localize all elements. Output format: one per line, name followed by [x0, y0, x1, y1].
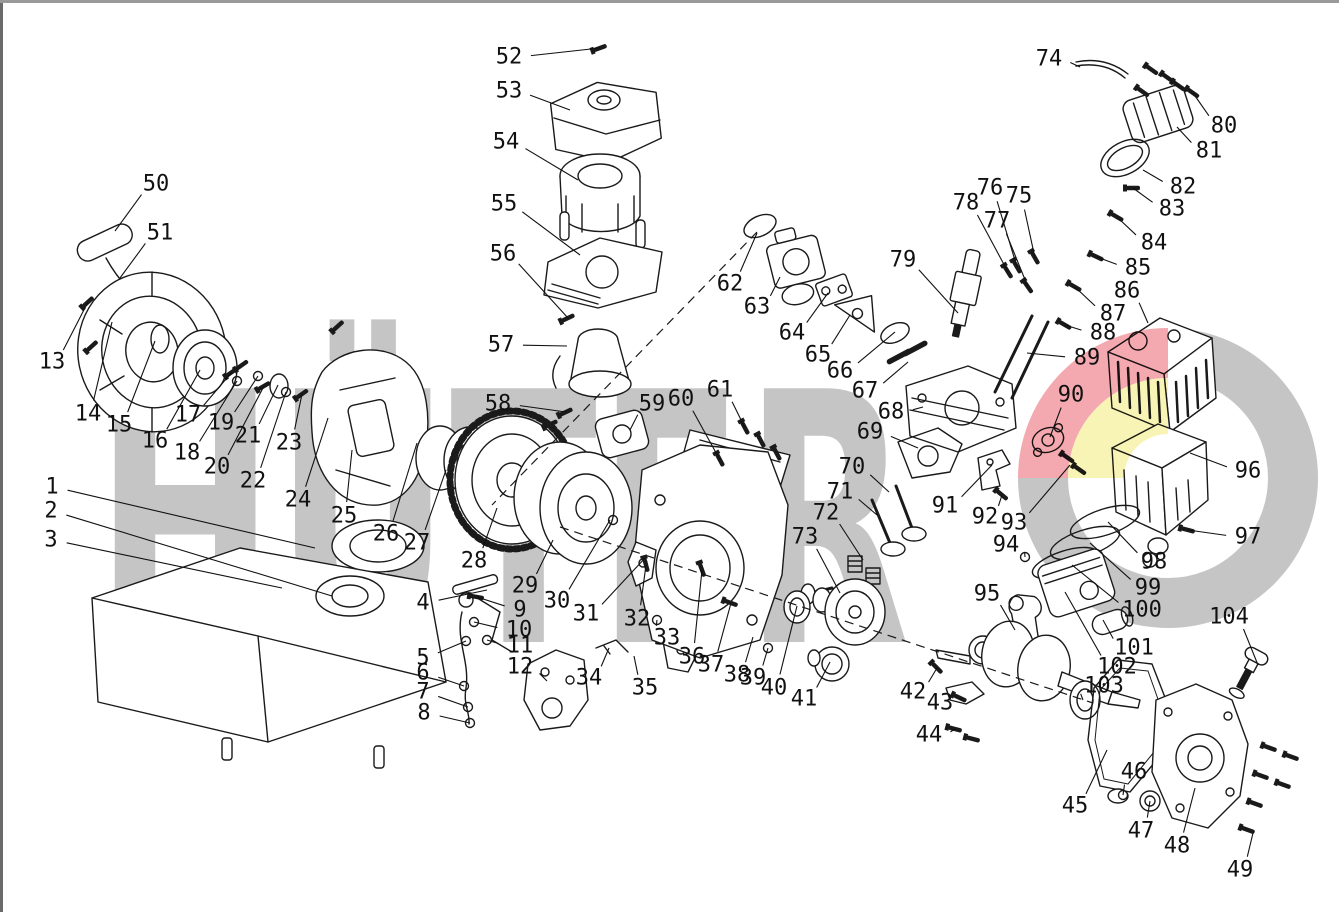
callout-49: 49 — [1227, 858, 1254, 883]
callout-89: 89 — [1074, 346, 1101, 371]
callout-90: 90 — [1058, 383, 1085, 408]
air-filter-cover-drawing — [549, 78, 662, 165]
callout-44: 44 — [916, 723, 943, 748]
leader-line-47 — [1147, 801, 1150, 818]
callout-31: 31 — [573, 602, 600, 627]
fastener-bolt-icon — [1281, 750, 1299, 762]
callout-63: 63 — [744, 295, 771, 320]
callout-50: 50 — [143, 172, 170, 197]
leader-line-86 — [1139, 303, 1148, 323]
leader-line-98 — [1108, 522, 1137, 553]
callout-33: 33 — [654, 626, 681, 651]
callout-70: 70 — [839, 455, 866, 480]
exploded-parts-drawing: HÜTER — [0, 0, 1339, 912]
callout-4: 4 — [416, 591, 429, 616]
callout-27: 27 — [404, 531, 431, 556]
leader-line-62 — [740, 233, 757, 272]
callout-42: 42 — [900, 680, 927, 705]
callout-40: 40 — [761, 676, 788, 701]
callout-43: 43 — [927, 691, 954, 716]
callout-94: 94 — [993, 533, 1020, 558]
breather-bracket-drawing — [978, 450, 1010, 490]
callout-80: 80 — [1211, 114, 1238, 139]
callout-17: 17 — [175, 403, 202, 428]
callout-48: 48 — [1164, 834, 1191, 859]
callout-28: 28 — [461, 549, 488, 574]
callout-35: 35 — [632, 676, 659, 701]
callout-51: 51 — [147, 221, 174, 246]
leader-line-83 — [1133, 188, 1153, 202]
callout-41: 41 — [791, 687, 818, 712]
callout-86: 86 — [1114, 279, 1141, 304]
fan-shroud-drawing — [311, 350, 427, 505]
callout-96: 96 — [1235, 459, 1262, 484]
callout-58: 58 — [485, 392, 512, 417]
callout-100: 100 — [1122, 598, 1162, 623]
callout-77: 77 — [984, 209, 1011, 234]
callout-103: 103 — [1084, 674, 1124, 699]
callout-76: 76 — [977, 176, 1004, 201]
callout-37: 37 — [698, 653, 725, 678]
callout-60: 60 — [668, 387, 695, 412]
fastener-bolt-icon — [1158, 69, 1176, 84]
fuel-tank-drawing — [92, 548, 446, 768]
leader-line-74 — [1070, 62, 1080, 67]
callout-21: 21 — [235, 424, 262, 449]
leader-line-87 — [1075, 287, 1095, 306]
leader-line-42 — [929, 668, 937, 682]
fastener-bolt-icon — [1251, 769, 1269, 781]
leader-line-80 — [1193, 93, 1209, 116]
callout-88: 88 — [1090, 321, 1117, 346]
callout-1: 1 — [45, 475, 58, 500]
crankcase-cover-drawing — [1152, 684, 1248, 828]
oil-seal-cover-drawing — [1108, 789, 1160, 811]
callout-72: 72 — [813, 501, 840, 526]
callout-52: 52 — [496, 45, 523, 70]
fastener-bolt-icon — [1123, 185, 1140, 192]
callout-79: 79 — [890, 248, 917, 273]
callout-47: 47 — [1128, 819, 1155, 844]
callout-20: 20 — [204, 455, 231, 480]
cylinder-head-drawing — [906, 366, 1016, 452]
callout-92: 92 — [972, 505, 999, 530]
callout-74: 74 — [1036, 47, 1063, 72]
callout-12: 12 — [507, 655, 534, 680]
callout-67: 67 — [852, 379, 879, 404]
callout-62: 62 — [717, 272, 744, 297]
callout-53: 53 — [496, 79, 523, 104]
callout-18: 18 — [174, 441, 201, 466]
callout-8: 8 — [417, 701, 430, 726]
leader-line-82 — [1143, 170, 1163, 182]
fastener-bolt-icon — [927, 658, 944, 675]
callout-84: 84 — [1141, 231, 1168, 256]
callout-54: 54 — [493, 130, 520, 155]
diagram-stage: HÜTER — [0, 0, 1339, 916]
callout-61: 61 — [707, 378, 734, 403]
fastener-bolt-icon — [1245, 797, 1263, 809]
callout-104: 104 — [1209, 605, 1249, 630]
callout-15: 15 — [106, 413, 133, 438]
fastener-bolt-icon — [1055, 317, 1073, 332]
callout-81: 81 — [1196, 139, 1223, 164]
callout-91: 91 — [932, 494, 959, 519]
fastener-bolt-icon — [1177, 524, 1195, 535]
callout-66: 66 — [827, 359, 854, 384]
callout-19: 19 — [208, 411, 235, 436]
fastener-bolt-icon — [962, 733, 980, 744]
leader-line-52 — [531, 48, 600, 56]
callout-97: 97 — [1235, 525, 1262, 550]
callout-45: 45 — [1062, 794, 1089, 819]
callout-16: 16 — [142, 429, 169, 454]
callout-57: 57 — [488, 333, 515, 358]
callout-29: 29 — [512, 574, 539, 599]
callout-22: 22 — [240, 469, 267, 494]
callout-78: 78 — [953, 191, 980, 216]
leader-line-49 — [1247, 833, 1253, 857]
callout-13: 13 — [39, 350, 66, 375]
fastener-bolt-icon — [1273, 778, 1291, 790]
callout-75: 75 — [1006, 184, 1033, 209]
callout-83: 83 — [1159, 197, 1186, 222]
air-filter-element-drawing — [560, 154, 640, 232]
callout-98: 98 — [1141, 550, 1168, 575]
leader-line-92 — [998, 495, 1002, 506]
callout-30: 30 — [544, 589, 571, 614]
starter-pulley-drawing — [173, 330, 237, 406]
callout-55: 55 — [491, 192, 518, 217]
callout-95: 95 — [974, 582, 1001, 607]
callout-59: 59 — [639, 392, 666, 417]
spark-plug-drawing — [943, 248, 987, 339]
high-tension-wire-drawing — [1076, 61, 1128, 79]
callout-46: 46 — [1121, 760, 1148, 785]
callout-26: 26 — [373, 522, 400, 547]
callout-85: 85 — [1125, 256, 1152, 281]
fastener-bolt-icon — [1086, 250, 1104, 264]
oil-dipstick-drawing — [1224, 645, 1270, 702]
callout-25: 25 — [331, 504, 358, 529]
callout-32: 32 — [624, 607, 651, 632]
fastener-bolt-icon — [1142, 61, 1160, 76]
callout-3: 3 — [44, 528, 57, 553]
muffler-heat-shield-drawing — [1121, 83, 1195, 145]
intake-gasket-drawing — [740, 210, 779, 242]
callout-24: 24 — [285, 488, 312, 513]
callout-64: 64 — [779, 321, 806, 346]
callout-34: 34 — [576, 666, 603, 691]
callout-23: 23 — [276, 431, 303, 456]
callout-2: 2 — [44, 499, 57, 524]
leader-line-84 — [1117, 217, 1136, 235]
callout-56: 56 — [490, 242, 517, 267]
callout-73: 73 — [792, 525, 819, 550]
callout-69: 69 — [857, 420, 884, 445]
callout-14: 14 — [75, 402, 102, 427]
fastener-bolt-icon — [1259, 741, 1277, 753]
fastener-bolt-icon — [944, 723, 962, 734]
